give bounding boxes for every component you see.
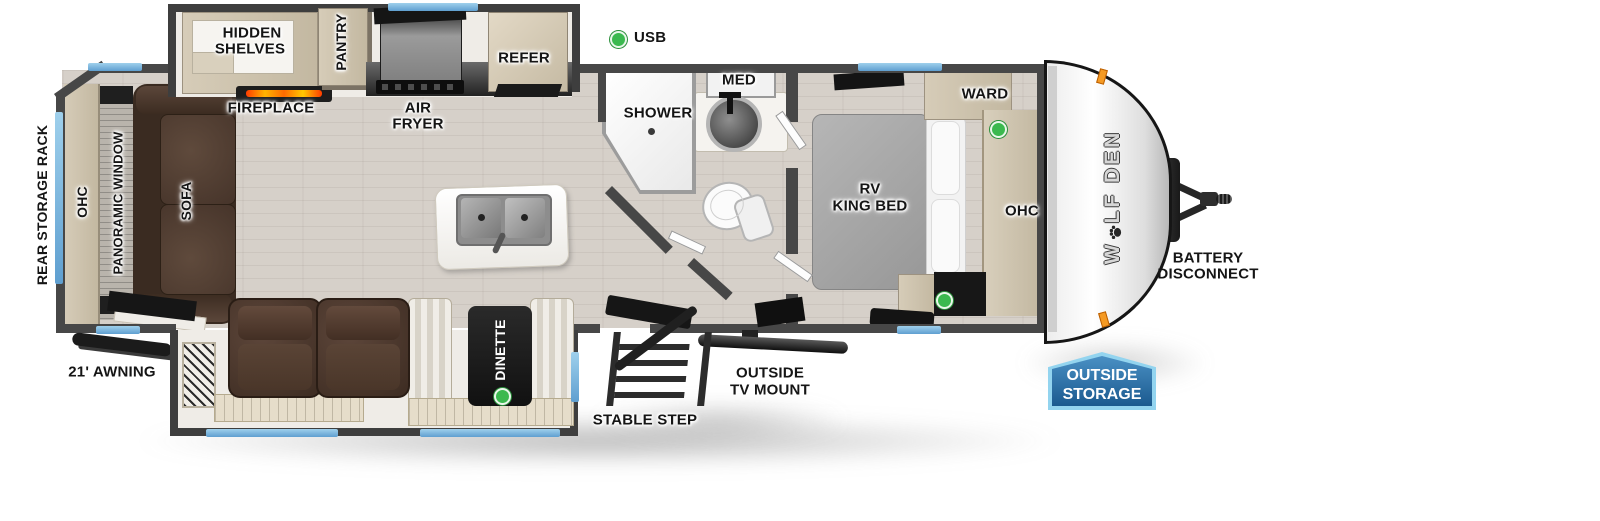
rear-ohc-label: OHC xyxy=(74,186,90,218)
bath-faucet-bar xyxy=(719,92,741,98)
refer-label: REFER xyxy=(498,50,550,67)
shower-drain xyxy=(648,128,655,135)
theater-seat xyxy=(316,298,410,398)
battery-disconnect-label-1: BATTERY xyxy=(1173,250,1244,267)
living-slideout xyxy=(170,296,578,436)
brand-suffix: LF DEN xyxy=(1101,130,1125,224)
hidden-shelves-label-2: SHELVES xyxy=(215,41,285,58)
window xyxy=(858,63,942,71)
bath-wall-stub xyxy=(598,66,606,122)
usb-legend-label: USB xyxy=(634,29,666,46)
burner-knobs xyxy=(382,84,458,90)
bed-wall-segment xyxy=(786,66,798,122)
outside-tv-mount-label-2: TV MOUNT xyxy=(730,382,810,399)
paw-icon xyxy=(1105,225,1121,241)
usb-port-dot xyxy=(494,388,511,405)
bedroom-ohc-label: OHC xyxy=(1005,203,1039,220)
battery-disconnect-label-2: DISCONNECT xyxy=(1157,266,1258,283)
usb-port-dot xyxy=(990,121,1007,138)
slide-window xyxy=(571,352,579,402)
window xyxy=(897,326,941,334)
rear-window xyxy=(55,112,63,284)
awning-label: 21' AWNING xyxy=(68,364,156,381)
brand-prefix: W xyxy=(1101,242,1125,265)
sofa-cushion xyxy=(160,204,236,295)
top-wall xyxy=(570,64,1046,73)
rear-storage-rack-label: REAR STORAGE RACK xyxy=(34,125,50,285)
sofa-label: SOFA xyxy=(178,182,194,221)
window xyxy=(88,63,142,71)
slide-window xyxy=(388,3,478,11)
bath-sink xyxy=(706,96,762,152)
hitch-spring xyxy=(1216,194,1232,204)
seat-back xyxy=(326,306,400,340)
floorplan-canvas: W LF DEN OUTSIDE STORAGE USB HIDDEN SHEL… xyxy=(0,0,1600,521)
outside-tv-mount-label-1: OUTSIDE xyxy=(736,365,804,382)
dinette-bench xyxy=(530,298,574,404)
slide-window xyxy=(420,429,560,437)
brand-logo: W LF DEN xyxy=(1101,130,1125,265)
window xyxy=(96,326,140,334)
rv-king-bed-label-1: RV xyxy=(860,181,881,198)
fireplace-flames xyxy=(246,90,322,97)
refer-vent xyxy=(494,84,562,97)
slide-step-trim xyxy=(214,394,364,422)
air-fryer-label-1: AIR xyxy=(405,100,431,117)
med-label: MED xyxy=(722,72,756,89)
seat-cushion xyxy=(238,344,312,390)
dinette-label: DINETTE xyxy=(492,319,508,380)
theater-seat xyxy=(228,298,322,398)
outside-tv-mount-bar xyxy=(698,334,848,354)
window-end-cap xyxy=(100,86,133,104)
vent-panel xyxy=(182,342,216,408)
outside-storage-label: OUTSIDE STORAGE xyxy=(1048,366,1156,404)
seat-back xyxy=(238,306,312,340)
usb-legend-dot xyxy=(610,31,627,48)
usb-port-dot xyxy=(936,292,953,309)
sink-drain xyxy=(478,214,485,221)
dinette-bench xyxy=(408,298,452,404)
seat-cushion xyxy=(326,344,400,390)
sofa-cushion xyxy=(160,114,236,205)
fireplace-label: FIREPLACE xyxy=(228,100,315,117)
front-cap-band xyxy=(1048,66,1057,332)
bed-pillow xyxy=(931,121,960,195)
hidden-shelves-label-1: HIDDEN xyxy=(223,25,282,42)
sink-drain xyxy=(521,214,528,221)
bed-wall-segment xyxy=(786,168,798,254)
air-fryer-label-2: FRYER xyxy=(392,116,443,133)
slide-window xyxy=(206,429,338,437)
ward-label: WARD xyxy=(962,86,1009,103)
shower-label: SHOWER xyxy=(624,105,693,122)
panoramic-window-label: PANORAMIC WINDOW xyxy=(111,131,126,274)
stable-step-label: STABLE STEP xyxy=(593,412,697,429)
rv-king-bed-label-2: KING BED xyxy=(833,198,908,215)
pantry-label: PANTRY xyxy=(333,13,349,70)
bed-pillow xyxy=(931,199,960,273)
